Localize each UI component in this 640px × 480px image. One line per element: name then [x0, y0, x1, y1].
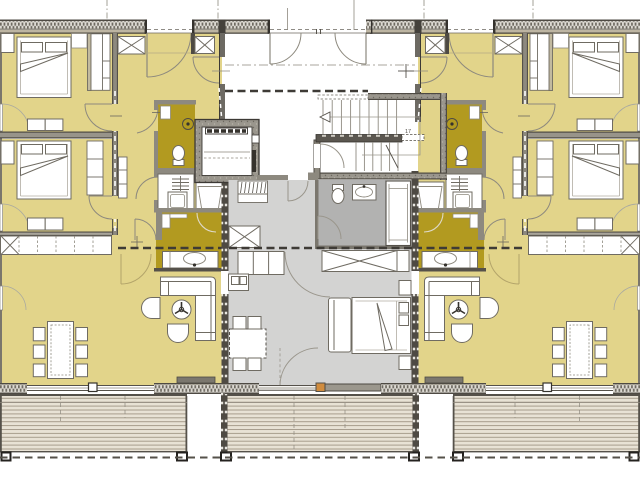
- svg-text:17: 17: [405, 129, 411, 135]
